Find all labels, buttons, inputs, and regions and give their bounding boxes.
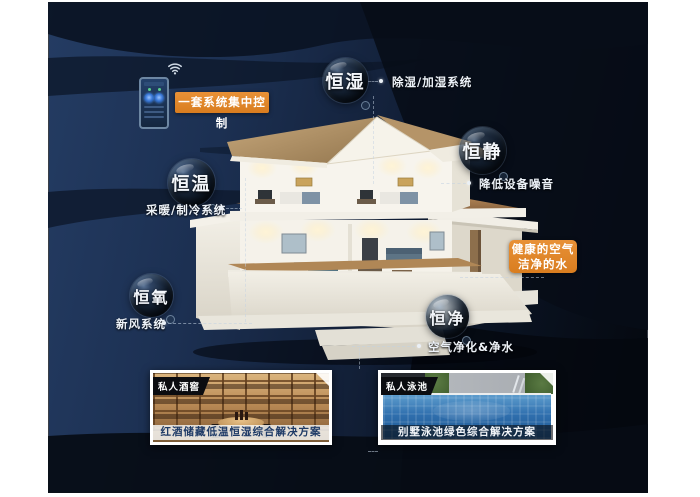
connector-dot: [162, 321, 166, 325]
healthy-air-water-banner: 健康的空气 洁净的水: [509, 240, 577, 273]
bubble-constant-clean: 恒净: [426, 295, 469, 338]
clean-water-line: 洁净的水: [509, 257, 577, 272]
wine-bottle: [240, 410, 243, 420]
corner-fold-icon: [316, 373, 329, 386]
callout-heating-cooling-system: 采暖/制冷系统: [146, 202, 226, 218]
wine-bottle: [235, 412, 238, 420]
bubble-label: 恒静: [463, 138, 503, 164]
connector-line: [460, 277, 544, 278]
connector-line: [373, 96, 374, 184]
callout-air-water-purification: 空气净化&净水: [428, 339, 514, 355]
corner-fold-icon: [540, 373, 553, 386]
photo-tag-pool: 私人泳池: [381, 377, 438, 395]
bubble-label: 恒湿: [326, 68, 366, 94]
connector-line: [368, 451, 378, 452]
smart-home-infographic: 一套系统集中控制 健康的空气 洁净的水 恒湿 恒静 恒温 恒氧 恒净 除湿/加湿…: [0, 0, 700, 497]
central-control-banner: 一套系统集中控制: [175, 92, 269, 113]
wine-bottle: [245, 412, 248, 420]
wifi-icon: [166, 61, 184, 76]
bubble-constant-temperature: 恒温: [168, 159, 215, 206]
photo-tag-wine: 私人酒窖: [153, 377, 210, 395]
connector-dot: [467, 181, 471, 185]
pool-photo: 私人泳池 别墅泳池绿色综合解决方案: [378, 370, 556, 445]
bubble-constant-quiet: 恒静: [459, 127, 506, 174]
connector-line: [245, 178, 246, 322]
connector-dot: [219, 206, 223, 210]
wine-cellar-photo: 私人酒窖 红酒储藏低温恒湿综合解决方案: [150, 370, 332, 445]
connector-line: [441, 183, 466, 184]
bubble-constant-humidity: 恒湿: [323, 58, 368, 103]
bubble-label: 恒氧: [133, 284, 169, 308]
connector-dot: [417, 344, 421, 348]
bubble-constant-oxygen: 恒氧: [130, 274, 173, 317]
connector-line: [368, 81, 378, 82]
healthy-air-line: 健康的空气: [509, 242, 577, 257]
connector-line: [168, 323, 252, 324]
callout-noise-reduction: 降低设备噪音: [479, 176, 554, 192]
callout-dehumidify-system: 除湿/加湿系统: [392, 74, 472, 90]
bubble-label: 恒净: [429, 305, 465, 329]
connector-line: [359, 348, 360, 369]
connector-line: [226, 208, 242, 209]
photo-caption-wine: 红酒储藏低温恒湿综合解决方案: [153, 425, 329, 440]
photo-caption-pool: 别墅泳池绿色综合解决方案: [381, 425, 553, 440]
pool-water-shine: [433, 401, 510, 422]
smart-control-panel-icon: [139, 77, 169, 129]
bubble-label: 恒温: [172, 170, 212, 196]
connector-line: [352, 346, 415, 347]
callout-fresh-air-system: 新风系统: [116, 316, 166, 332]
connector-dot: [379, 79, 383, 83]
